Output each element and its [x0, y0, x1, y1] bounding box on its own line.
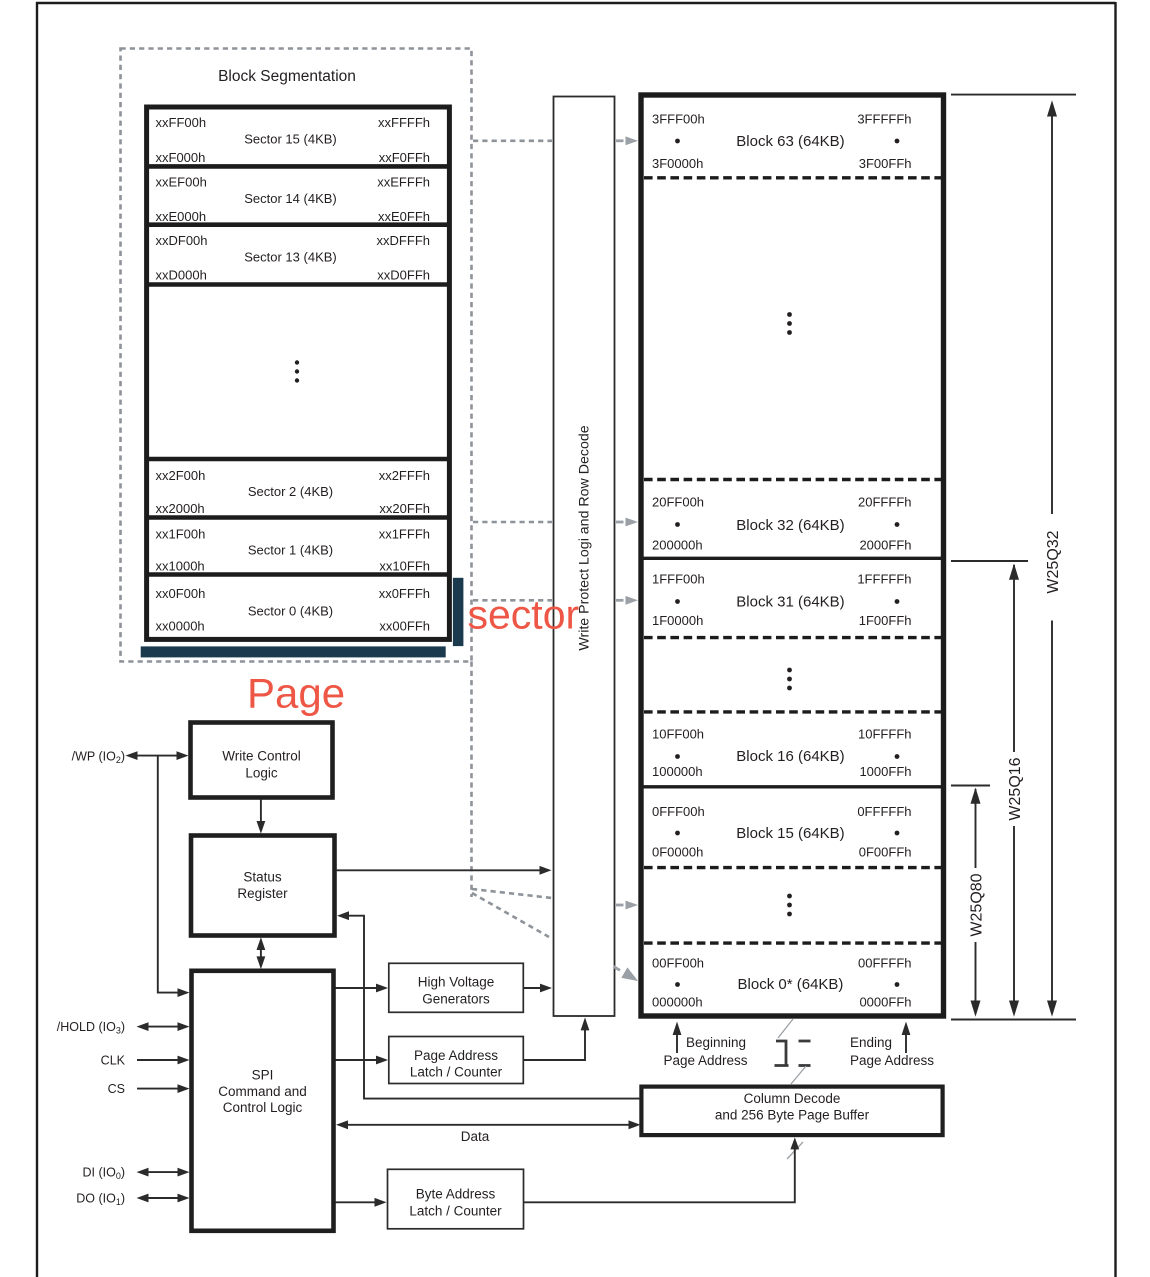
svg-text:Page Address: Page Address	[850, 1053, 934, 1068]
svg-text:Sector 13 (4KB): Sector 13 (4KB)	[244, 250, 337, 265]
svg-text:CLK: CLK	[101, 1054, 126, 1068]
svg-text:20FFFFh: 20FFFFh	[858, 495, 911, 510]
svg-text:xx1F00h: xx1F00h	[156, 527, 206, 542]
svg-text:0000FFh: 0000FFh	[859, 995, 911, 1010]
svg-text:1FFFFFh: 1FFFFFh	[857, 571, 911, 586]
svg-text:xxD0FFh: xxD0FFh	[377, 268, 430, 283]
svg-text:Block 31 (64KB): Block 31 (64KB)	[736, 594, 844, 611]
svg-text:Sector 15 (4KB): Sector 15 (4KB)	[244, 132, 337, 147]
svg-text:1F00FFh: 1F00FFh	[859, 613, 912, 628]
svg-text:W25Q16: W25Q16	[1007, 757, 1024, 820]
svg-text:1000FFh: 1000FFh	[859, 764, 911, 779]
svg-text:CS: CS	[108, 1082, 125, 1096]
svg-text:Sector 14 (4KB): Sector 14 (4KB)	[244, 191, 337, 206]
svg-text:3F0000h: 3F0000h	[652, 156, 703, 171]
svg-text:3F00FFh: 3F00FFh	[859, 156, 912, 171]
svg-text:xxE000h: xxE000h	[156, 209, 207, 224]
svg-text:xx1FFFh: xx1FFFh	[379, 527, 430, 542]
svg-text:2000FFh: 2000FFh	[859, 537, 911, 552]
svg-text:Block 63 (64KB): Block 63 (64KB)	[736, 133, 844, 150]
svg-text:W25Q80: W25Q80	[969, 873, 986, 936]
svg-text:0FFFFFh: 0FFFFFh	[857, 804, 911, 819]
svg-text:xxDFFFh: xxDFFFh	[377, 233, 430, 248]
svg-text:Beginning: Beginning	[686, 1035, 746, 1050]
svg-text:Register: Register	[237, 886, 288, 901]
svg-text:xx2000h: xx2000h	[156, 501, 205, 516]
svg-text:Page Address: Page Address	[664, 1053, 748, 1068]
svg-text:0F00FFh: 0F00FFh	[859, 844, 912, 859]
svg-text:3FFFFFh: 3FFFFFh	[857, 111, 911, 126]
svg-text:High Voltage: High Voltage	[418, 974, 495, 989]
svg-text:00FFFFh: 00FFFFh	[858, 955, 911, 970]
svg-text:Byte Address: Byte Address	[416, 1186, 496, 1201]
svg-text:Control Logic: Control Logic	[223, 1100, 303, 1115]
svg-text:Block 16 (64KB): Block 16 (64KB)	[736, 748, 844, 765]
svg-text:xx1000h: xx1000h	[156, 559, 205, 574]
svg-text:xxF000h: xxF000h	[156, 150, 206, 165]
svg-text:Block 0* (64KB): Block 0* (64KB)	[738, 976, 844, 993]
svg-text:Page Address: Page Address	[414, 1048, 498, 1063]
svg-text:1F0000h: 1F0000h	[652, 613, 703, 628]
svg-text:Column Decode: Column Decode	[744, 1091, 841, 1106]
svg-text:SPI: SPI	[252, 1068, 274, 1083]
svg-text:W25Q32: W25Q32	[1045, 530, 1062, 593]
svg-text:/HOLD (IO3): /HOLD (IO3)	[57, 1020, 125, 1036]
svg-text:Latch / Counter: Latch / Counter	[409, 1204, 502, 1219]
svg-text:xx0000h: xx0000h	[156, 619, 205, 634]
svg-text:3FFF00h: 3FFF00h	[652, 111, 705, 126]
svg-text:xxDF00h: xxDF00h	[156, 233, 208, 248]
svg-text:xxD000h: xxD000h	[156, 268, 207, 283]
svg-text:00FF00h: 00FF00h	[652, 955, 704, 970]
svg-text:20FF00h: 20FF00h	[652, 495, 704, 510]
svg-text:Status: Status	[243, 870, 282, 885]
svg-text:Page: Page	[247, 670, 345, 717]
svg-text:xx20FFh: xx20FFh	[379, 501, 430, 516]
svg-text:Block 15 (64KB): Block 15 (64KB)	[736, 825, 844, 842]
svg-text:xx0F00h: xx0F00h	[156, 586, 206, 601]
svg-text:Data: Data	[461, 1129, 490, 1144]
svg-text:xxE0FFh: xxE0FFh	[378, 209, 430, 224]
svg-text:0F0000h: 0F0000h	[652, 844, 703, 859]
svg-text:Sector 2 (4KB): Sector 2 (4KB)	[248, 484, 333, 499]
svg-text:Sector 0 (4KB): Sector 0 (4KB)	[248, 604, 333, 619]
svg-text:xx00FFh: xx00FFh	[379, 619, 430, 634]
svg-text:Ending: Ending	[850, 1035, 892, 1050]
svg-text:sector: sector	[468, 592, 580, 638]
svg-text:Generators: Generators	[422, 992, 490, 1007]
svg-text:Block Segmentation: Block Segmentation	[218, 68, 356, 85]
svg-text:xxFFFFh: xxFFFFh	[378, 115, 430, 130]
svg-text:xxEFFFh: xxEFFFh	[377, 175, 430, 190]
svg-text:10FFFFh: 10FFFFh	[858, 727, 911, 742]
svg-text:100000h: 100000h	[652, 764, 703, 779]
svg-text:xxFF00h: xxFF00h	[156, 115, 207, 130]
svg-text:xx2FFFh: xx2FFFh	[379, 468, 430, 483]
svg-text:Latch / Counter: Latch / Counter	[410, 1065, 503, 1080]
svg-text:Command and: Command and	[218, 1084, 307, 1099]
svg-text:Sector 1 (4KB): Sector 1 (4KB)	[248, 543, 333, 558]
svg-text:Logic: Logic	[245, 766, 278, 781]
svg-text:Block 32 (64KB): Block 32 (64KB)	[736, 517, 844, 534]
svg-text:10FF00h: 10FF00h	[652, 727, 704, 742]
svg-text:0FFF00h: 0FFF00h	[652, 804, 705, 819]
svg-text:xx2F00h: xx2F00h	[156, 468, 206, 483]
svg-text:xx10FFh: xx10FFh	[379, 559, 430, 574]
svg-text:1FFF00h: 1FFF00h	[652, 571, 705, 586]
svg-text:and 256 Byte Page Buffer: and 256 Byte Page Buffer	[715, 1108, 870, 1123]
svg-text:000000h: 000000h	[652, 995, 703, 1010]
svg-text:xxF0FFh: xxF0FFh	[379, 150, 430, 165]
svg-text:Write Control: Write Control	[222, 749, 301, 764]
svg-text:xxEF00h: xxEF00h	[156, 175, 207, 190]
svg-text:200000h: 200000h	[652, 537, 703, 552]
svg-text:xx0FFFh: xx0FFFh	[379, 586, 430, 601]
